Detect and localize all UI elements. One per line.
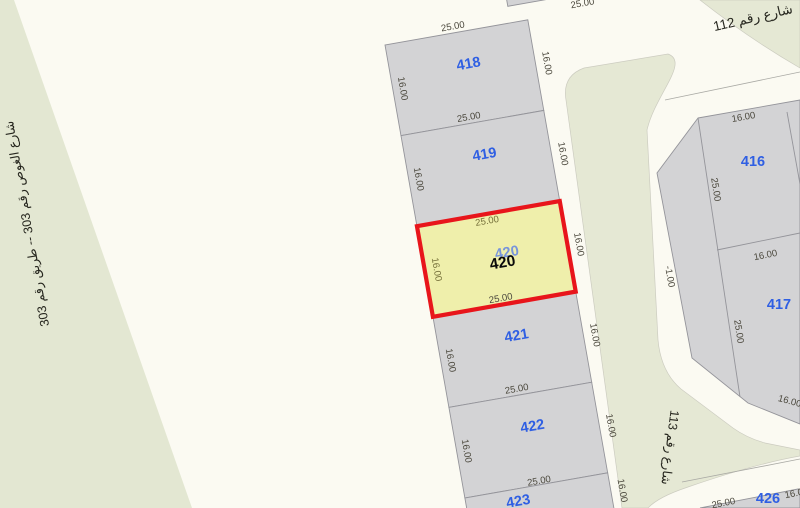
parcel-number-416: 416: [741, 154, 765, 170]
cadastral-map: 25.00 25.00 16.00 16.00 418 25.00 16.00 …: [0, 0, 800, 508]
parcel-number-426: 426: [756, 491, 780, 507]
parcel-number-417: 417: [767, 297, 791, 313]
